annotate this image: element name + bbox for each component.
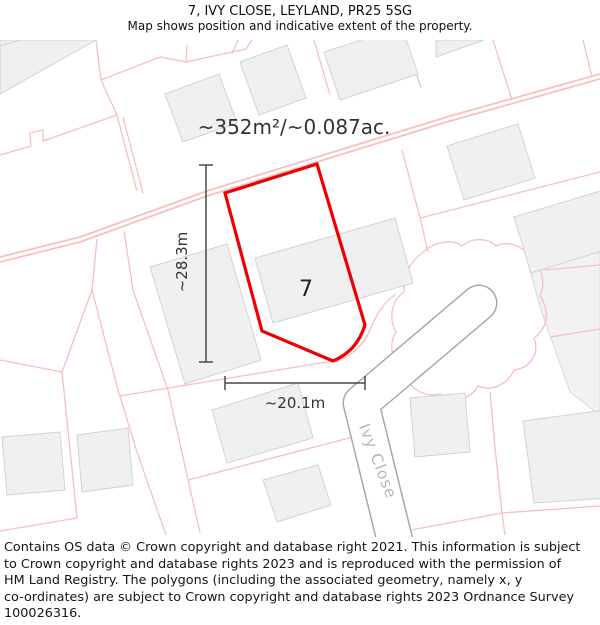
vertical-dimension-label: ~28.3m — [173, 232, 191, 293]
horizontal-dimension-label: ~20.1m — [265, 394, 326, 412]
plot-number-label: 7 — [299, 277, 313, 302]
map-canvas: ~352m²/~0.087ac. 7 ~28.3m ~20.1m Ivy Clo… — [0, 40, 600, 537]
footer-attribution: Contains OS data © Crown copyright and d… — [0, 537, 600, 625]
building — [436, 40, 484, 57]
building — [240, 45, 306, 115]
attribution-line: to Crown copyright and database rights 2… — [4, 557, 596, 574]
area-label: ~352m²/~0.087ac. — [198, 115, 391, 139]
building — [263, 465, 331, 522]
page-subtitle: Map shows position and indicative extent… — [0, 19, 600, 34]
building — [324, 40, 418, 100]
property-map: ~352m²/~0.087ac. 7 ~28.3m ~20.1m Ivy Clo… — [0, 40, 600, 537]
building — [2, 432, 65, 495]
building — [447, 124, 535, 200]
building-plot-7 — [255, 218, 413, 323]
building — [77, 428, 133, 492]
building — [410, 393, 470, 457]
map-header: 7, IVY CLOSE, LEYLAND, PR25 5SG Map show… — [0, 0, 600, 40]
attribution-line: co-ordinates) are subject to Crown copyr… — [4, 590, 596, 607]
building — [523, 409, 600, 503]
page-title: 7, IVY CLOSE, LEYLAND, PR25 5SG — [0, 0, 600, 19]
attribution-line: HM Land Registry. The polygons (includin… — [4, 573, 596, 590]
attribution-line: 100026316. — [4, 606, 596, 623]
attribution-line: Contains OS data © Crown copyright and d… — [4, 540, 596, 557]
building — [0, 40, 96, 94]
